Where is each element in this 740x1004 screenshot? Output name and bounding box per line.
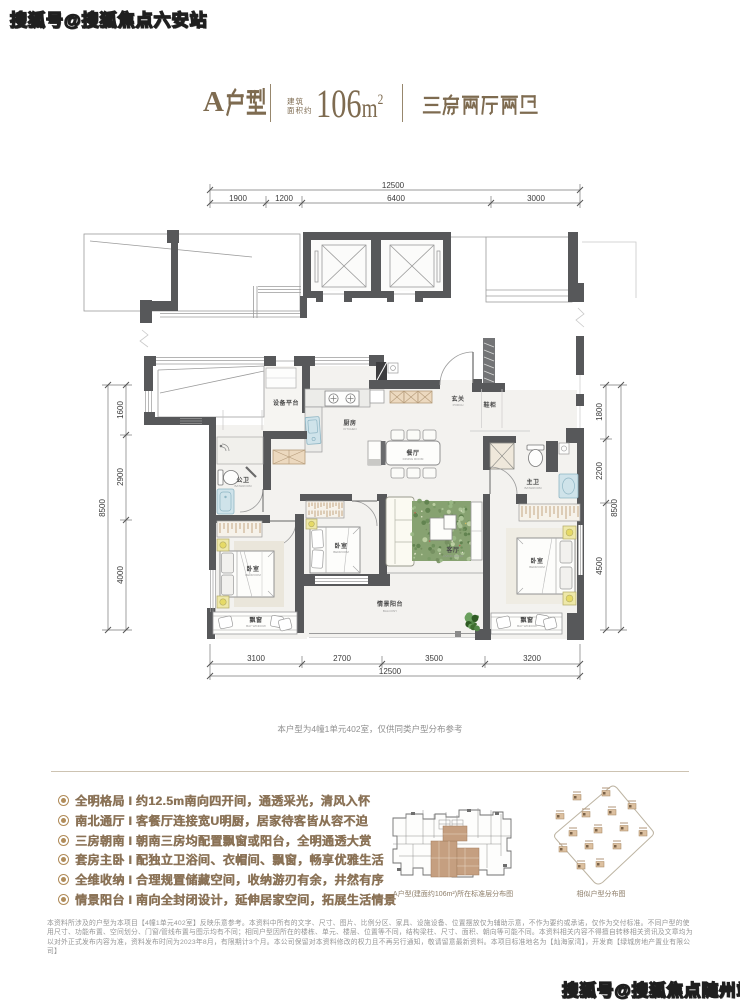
svg-text:BALCONY: BALCONY: [383, 609, 397, 613]
svg-text:KITCHEN: KITCHEN: [343, 427, 356, 431]
svg-text:设备平台: 设备平台: [273, 399, 299, 407]
svg-text:BEDROOM: BEDROOM: [529, 565, 545, 569]
svg-text:8500: 8500: [610, 499, 619, 517]
svg-text:BEDROOM: BEDROOM: [245, 573, 261, 577]
svg-text:1800: 1800: [595, 403, 604, 421]
svg-text:1900: 1900: [229, 194, 247, 203]
svg-text:公卫: 公卫: [236, 477, 249, 484]
svg-text:BAY WINDOW: BAY WINDOW: [517, 624, 537, 628]
svg-text:卧室: 卧室: [246, 565, 259, 573]
svg-text:卧室: 卧室: [530, 557, 543, 565]
svg-text:1600: 1600: [116, 401, 125, 419]
svg-text:3000: 3000: [527, 194, 545, 203]
svg-text:飘窗: 飘窗: [248, 616, 262, 624]
svg-text:4500: 4500: [595, 557, 604, 575]
svg-text:BEDROOM: BEDROOM: [333, 550, 349, 554]
svg-text:厨房: 厨房: [343, 419, 356, 427]
svg-text:2900: 2900: [116, 468, 125, 486]
svg-text:2700: 2700: [333, 654, 351, 663]
svg-text:餐厅: 餐厅: [405, 449, 419, 457]
svg-text:鞋柜: 鞋柜: [483, 401, 496, 409]
svg-text:BATHROOM: BATHROOM: [234, 484, 252, 488]
svg-text:BAY WINDOW: BAY WINDOW: [246, 624, 266, 628]
svg-text:8500: 8500: [98, 499, 107, 517]
svg-text:主卫: 主卫: [526, 478, 539, 486]
svg-text:3100: 3100: [247, 654, 265, 663]
svg-text:DINING ROOM: DINING ROOM: [403, 457, 424, 461]
svg-text:情景阳台: 情景阳台: [377, 600, 403, 608]
svg-text:4000: 4000: [116, 566, 125, 584]
svg-text:PORCH: PORCH: [453, 403, 464, 407]
svg-text:客厅: 客厅: [445, 546, 459, 554]
svg-text:LIVING ROOM: LIVING ROOM: [443, 554, 464, 558]
svg-text:卧室: 卧室: [334, 542, 347, 550]
svg-text:3200: 3200: [523, 654, 541, 663]
svg-text:12500: 12500: [382, 181, 405, 190]
svg-text:3500: 3500: [425, 654, 443, 663]
svg-text:1200: 1200: [275, 194, 293, 203]
svg-text:玄关: 玄关: [451, 395, 464, 403]
svg-text:飘窗: 飘窗: [519, 616, 533, 624]
svg-text:12500: 12500: [379, 667, 402, 676]
svg-text:6400: 6400: [387, 194, 405, 203]
svg-text:BATHROOM: BATHROOM: [524, 486, 542, 490]
svg-text:2200: 2200: [595, 462, 604, 480]
